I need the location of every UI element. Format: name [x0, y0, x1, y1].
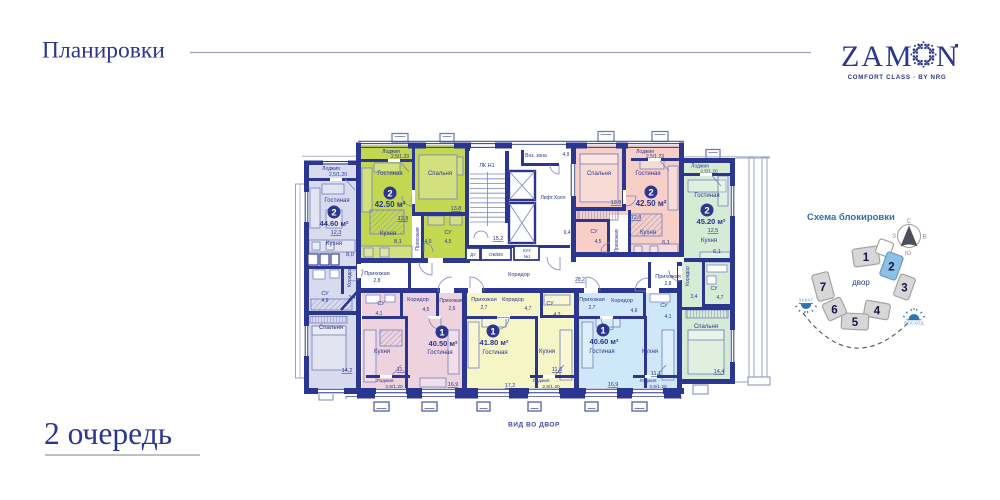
- svg-text:В: В: [922, 235, 926, 241]
- svg-text:Прихожая: Прихожая: [579, 297, 605, 303]
- svg-text:1: 1: [600, 325, 606, 336]
- svg-text:ОВ/ВК: ОВ/ВК: [489, 252, 503, 258]
- svg-text:4,9: 4,9: [563, 152, 570, 158]
- svg-text:4,3: 4,3: [554, 312, 561, 318]
- svg-text:1: 1: [439, 327, 445, 338]
- svg-text:Гостиная: Гостиная: [377, 171, 402, 177]
- svg-text:2,7: 2,7: [481, 305, 488, 311]
- svg-text:ZAM: ZAM: [841, 40, 914, 73]
- svg-text:Гостиная: Гостиная: [589, 349, 614, 355]
- svg-text:4,7: 4,7: [525, 306, 532, 312]
- svg-text:N: N: [936, 40, 958, 73]
- svg-text:11,1: 11,1: [397, 367, 407, 373]
- svg-text:Спальня: Спальня: [587, 171, 611, 177]
- svg-text:4,0: 4,0: [425, 239, 432, 245]
- svg-text:Кухня: Кухня: [374, 349, 390, 355]
- svg-text:14,2: 14,2: [342, 368, 353, 374]
- svg-text:Коридор: Коридор: [611, 298, 633, 304]
- svg-text:2: 2: [331, 207, 336, 218]
- svg-text:4,5: 4,5: [445, 239, 452, 245]
- svg-text:Кухня: Кухня: [642, 349, 658, 355]
- svg-text:Прихожая: Прихожая: [415, 227, 421, 250]
- svg-text:СУ: СУ: [660, 303, 668, 309]
- svg-text:Лифт.Холл: Лифт.Холл: [541, 195, 566, 201]
- svg-text:4,6: 4,6: [631, 308, 638, 314]
- svg-text:2: 2: [648, 187, 653, 198]
- svg-text:4,5: 4,5: [595, 239, 602, 245]
- svg-text:Планировки: Планировки: [42, 38, 165, 64]
- svg-text:4,1: 4,1: [665, 314, 672, 320]
- svg-text:6,1: 6,1: [662, 240, 670, 246]
- svg-text:2,8: 2,8: [374, 278, 381, 284]
- svg-text:41.80 м²: 41.80 м²: [480, 338, 509, 347]
- svg-text:Воз. зона: Воз. зона: [525, 153, 547, 159]
- svg-text:Кухня: Кухня: [380, 231, 396, 237]
- svg-text:2,5/1.23: 2,5/1.23: [391, 154, 409, 160]
- svg-text:ДУ: ДУ: [470, 252, 476, 257]
- svg-text:2,5/1.20: 2,5/1.20: [649, 384, 667, 390]
- svg-text:11,1: 11,1: [651, 371, 661, 377]
- svg-text:28,2: 28,2: [575, 277, 585, 283]
- svg-text:2,6: 2,6: [449, 306, 456, 312]
- svg-text:СУ: СУ: [546, 301, 554, 307]
- svg-text:42.50 м²: 42.50 м²: [636, 199, 667, 208]
- svg-text:№1: №1: [524, 254, 531, 259]
- svg-text:6,1: 6,1: [713, 249, 721, 255]
- svg-text:4: 4: [874, 306, 881, 318]
- svg-text:4,7: 4,7: [717, 295, 724, 301]
- svg-text:Лоджия: Лоджия: [640, 378, 657, 384]
- svg-text:4,6: 4,6: [322, 298, 329, 304]
- svg-text:Спальня: Спальня: [694, 324, 718, 330]
- svg-text:Прихожая: Прихожая: [655, 274, 681, 280]
- svg-text:Ю: Ю: [905, 251, 911, 257]
- svg-text:СУ: СУ: [590, 229, 598, 235]
- svg-text:СУ: СУ: [710, 286, 718, 292]
- svg-text:5: 5: [852, 317, 859, 329]
- svg-text:З: З: [892, 234, 896, 240]
- svg-text:2 очередь: 2 очередь: [44, 416, 172, 451]
- svg-text:2,5/1.20: 2,5/1.20: [542, 384, 560, 390]
- svg-text:4,5: 4,5: [423, 307, 430, 313]
- svg-text:ЗАКАТ: ЗАКАТ: [798, 298, 813, 303]
- svg-text:42.50 м²: 42.50 м²: [375, 200, 406, 209]
- svg-text:3,4: 3,4: [691, 294, 698, 300]
- svg-text:Прихожая: Прихожая: [471, 297, 497, 303]
- svg-text:ВОСХОД: ВОСХОД: [904, 321, 924, 326]
- svg-text:12,8: 12,8: [631, 215, 642, 221]
- svg-text:1: 1: [863, 252, 870, 264]
- svg-text:Прихожая: Прихожая: [439, 298, 462, 304]
- svg-text:16,9: 16,9: [448, 382, 459, 388]
- svg-text:2: 2: [888, 262, 894, 274]
- svg-text:8,0: 8,0: [346, 252, 354, 258]
- svg-text:3: 3: [901, 283, 907, 295]
- svg-text:9,4: 9,4: [564, 230, 571, 236]
- svg-text:7: 7: [820, 282, 826, 294]
- svg-text:2,5/1.23: 2,5/1.23: [646, 154, 664, 160]
- svg-text:Кухня: Кухня: [640, 230, 656, 236]
- svg-text:Прихожая: Прихожая: [364, 271, 390, 277]
- svg-text:Лоджия: Лоджия: [377, 378, 394, 384]
- svg-text:Коридор: Коридор: [508, 272, 530, 278]
- svg-text:13,8: 13,8: [451, 206, 462, 212]
- svg-text:2,5/1.20: 2,5/1.20: [329, 172, 347, 178]
- svg-text:44.60 м²: 44.60 м²: [320, 219, 349, 228]
- svg-text:КУУ: КУУ: [523, 248, 531, 253]
- svg-text:Гостиная: Гостиная: [427, 350, 452, 356]
- svg-text:Гостиная: Гостиная: [324, 198, 349, 204]
- svg-text:Кухня: Кухня: [326, 241, 342, 247]
- svg-text:12,5: 12,5: [708, 228, 719, 234]
- svg-text:15,2: 15,2: [493, 236, 504, 242]
- svg-text:Спальня: Спальня: [428, 171, 452, 177]
- svg-text:Коридор: Коридор: [407, 297, 429, 303]
- svg-text:Гостиная: Гостиная: [694, 193, 719, 199]
- svg-text:2,5/1.20: 2,5/1.20: [700, 169, 718, 175]
- svg-text:Кухня: Кухня: [539, 349, 555, 355]
- svg-text:ЛК Н1: ЛК Н1: [479, 163, 494, 169]
- svg-text:2: 2: [387, 188, 392, 199]
- svg-text:Спальня: Спальня: [319, 325, 343, 331]
- svg-text:40.50 м²: 40.50 м²: [429, 339, 458, 348]
- svg-text:СУ: СУ: [321, 291, 329, 297]
- svg-text:Схема блокировки: Схема блокировки: [807, 212, 895, 223]
- svg-text:2,8: 2,8: [665, 281, 672, 287]
- svg-text:17,2: 17,2: [505, 383, 516, 389]
- svg-text:11,6: 11,6: [552, 367, 562, 373]
- svg-text:С: С: [907, 219, 912, 225]
- svg-text:2,5/1.20: 2,5/1.20: [385, 384, 403, 390]
- svg-text:Лоджия: Лоджия: [533, 378, 550, 384]
- svg-text:12,3: 12,3: [331, 230, 342, 236]
- svg-text:1: 1: [490, 326, 496, 337]
- svg-text:Прихожая: Прихожая: [614, 229, 620, 252]
- svg-text:COMFORT CLASS · BY NRG: COMFORT CLASS · BY NRG: [848, 74, 947, 81]
- svg-text:ВИД ВО ДВОР: ВИД ВО ДВОР: [508, 422, 560, 429]
- svg-text:12,8: 12,8: [398, 216, 409, 222]
- svg-text:6: 6: [831, 305, 837, 317]
- svg-text:3,4: 3,4: [349, 295, 356, 301]
- svg-text:Кухня: Кухня: [701, 238, 717, 244]
- svg-text:Гостиная: Гостиная: [482, 350, 507, 356]
- svg-text:2: 2: [704, 205, 709, 216]
- svg-text:16,9: 16,9: [608, 382, 619, 388]
- svg-text:40.60 м²: 40.60 м²: [590, 337, 619, 346]
- svg-text:Коридор: Коридор: [347, 267, 353, 287]
- svg-text:двор: двор: [852, 278, 870, 287]
- svg-text:8,1: 8,1: [394, 239, 402, 245]
- svg-text:14,4: 14,4: [714, 369, 725, 375]
- svg-text:45.20 м²: 45.20 м²: [697, 217, 726, 226]
- svg-text:13,8: 13,8: [611, 200, 622, 206]
- svg-text:4,1: 4,1: [376, 311, 383, 317]
- svg-text:2,7: 2,7: [589, 305, 596, 311]
- svg-text:Коридор: Коридор: [502, 297, 524, 303]
- svg-text:СУ: СУ: [377, 301, 385, 307]
- svg-text:Гостиная: Гостиная: [635, 171, 660, 177]
- svg-text:Коридор: Коридор: [685, 266, 691, 286]
- svg-text:СУ: СУ: [444, 230, 452, 236]
